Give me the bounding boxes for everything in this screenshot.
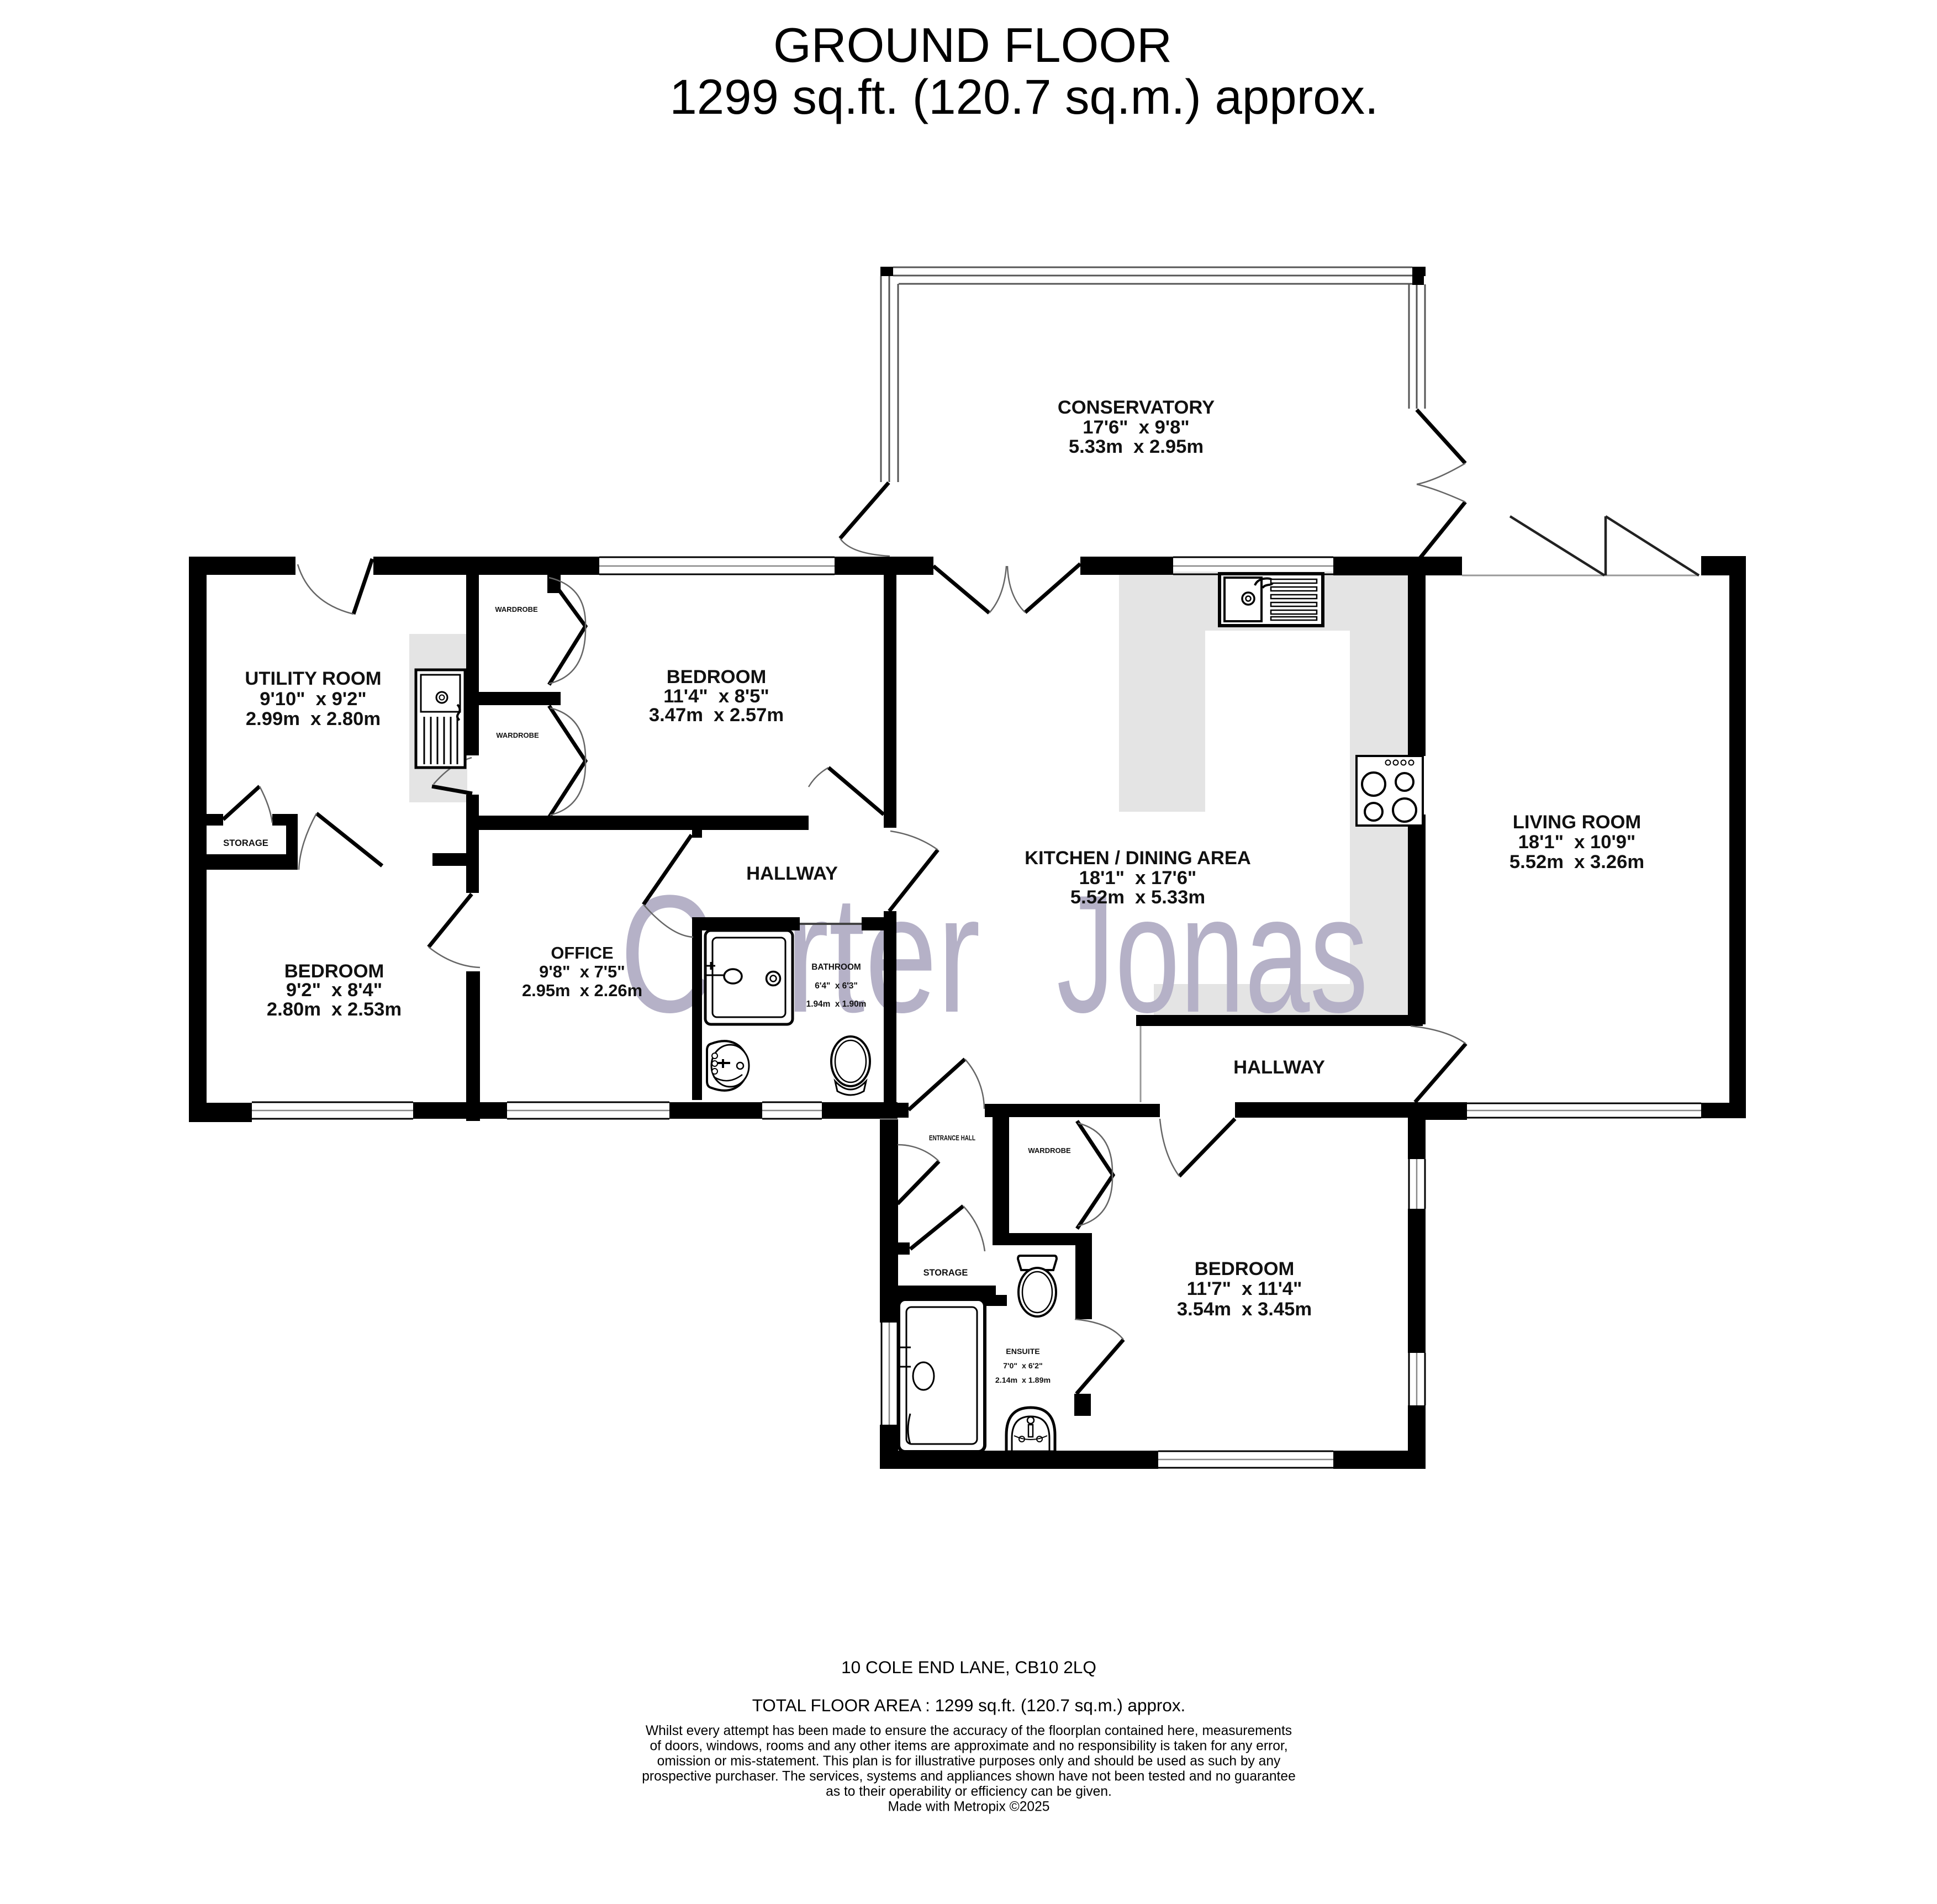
svg-text:9'2" x 8'4": 9'2" x 8'4" [286, 980, 382, 1001]
svg-text:prospective purchaser. The ser: prospective purchaser. The services, sys… [642, 1769, 1296, 1784]
svg-text:2.99m x 2.80m: 2.99m x 2.80m [246, 708, 381, 729]
svg-text:omission or mis-statement. Thi: omission or mis-statement. This plan is … [657, 1754, 1281, 1769]
svg-text:ENSUITE: ENSUITE [1006, 1347, 1040, 1356]
svg-text:LIVING ROOM: LIVING ROOM [1513, 812, 1641, 833]
svg-text:UTILITY ROOM: UTILITY ROOM [245, 668, 381, 689]
svg-text:6'4" x 6'3": 6'4" x 6'3" [815, 981, 858, 991]
svg-text:BEDROOM: BEDROOM [284, 961, 384, 982]
svg-text:18'1" x 17'6": 18'1" x 17'6" [1079, 868, 1197, 888]
svg-text:OFFICE: OFFICE [551, 943, 613, 962]
svg-text:3.47m x 2.57m: 3.47m x 2.57m [649, 705, 784, 726]
svg-text:GROUND FLOOR: GROUND FLOOR [773, 18, 1172, 72]
svg-text:BEDROOM: BEDROOM [1195, 1258, 1295, 1279]
svg-text:9'8" x 7'5": 9'8" x 7'5" [539, 962, 625, 981]
svg-text:ENTRANCE HALL: ENTRANCE HALL [929, 1134, 975, 1142]
svg-text:BEDROOM: BEDROOM [667, 667, 767, 687]
svg-text:17'6" x 9'8": 17'6" x 9'8" [1083, 417, 1189, 438]
svg-text:WARDROBE: WARDROBE [1028, 1146, 1071, 1155]
svg-text:BATHROOM: BATHROOM [811, 962, 861, 972]
svg-text:2.80m x 2.53m: 2.80m x 2.53m [267, 999, 402, 1020]
svg-text:1299 sq.ft. (120.7 sq.m.) appr: 1299 sq.ft. (120.7 sq.m.) approx. [669, 70, 1378, 124]
svg-text:5.33m x 2.95m: 5.33m x 2.95m [1069, 436, 1204, 457]
svg-text:1.94m x 1.90m: 1.94m x 1.90m [806, 999, 867, 1009]
svg-text:KITCHEN / DINING AREA: KITCHEN / DINING AREA [1025, 848, 1251, 869]
svg-text:9'10" x 9'2": 9'10" x 9'2" [260, 689, 366, 710]
svg-text:TOTAL FLOOR AREA : 1299 sq.ft.: TOTAL FLOOR AREA : 1299 sq.ft. (120.7 sq… [752, 1696, 1186, 1715]
svg-text:HALLWAY: HALLWAY [746, 863, 838, 884]
svg-text:10 COLE END LANE, CB10 2LQ: 10 COLE END LANE, CB10 2LQ [841, 1657, 1096, 1677]
svg-text:11'7" x 11'4": 11'7" x 11'4" [1187, 1278, 1302, 1299]
svg-text:18'1" x 10'9": 18'1" x 10'9" [1518, 832, 1636, 853]
svg-text:11'4" x 8'5": 11'4" x 8'5" [663, 686, 769, 707]
svg-text:5.52m x 3.26m: 5.52m x 3.26m [1510, 851, 1644, 872]
svg-text:7'0" x 6'2": 7'0" x 6'2" [1003, 1362, 1042, 1371]
svg-text:WARDROBE: WARDROBE [496, 731, 539, 739]
svg-text:3.54m x 3.45m: 3.54m x 3.45m [1177, 1299, 1312, 1320]
svg-text:CONSERVATORY: CONSERVATORY [1058, 397, 1215, 418]
svg-text:of doors, windows, rooms and a: of doors, windows, rooms and any other i… [650, 1739, 1287, 1754]
svg-text:as to their operability or eff: as to their operability or efficiency ca… [826, 1784, 1112, 1799]
svg-text:Made with Metropix ©2025: Made with Metropix ©2025 [888, 1800, 1050, 1815]
svg-text:STORAGE: STORAGE [223, 838, 268, 848]
svg-text:Whilst every attempt has been: Whilst every attempt has been made to en… [646, 1723, 1292, 1738]
svg-text:5.52m x 5.33m: 5.52m x 5.33m [1070, 887, 1205, 908]
svg-text:HALLWAY: HALLWAY [1233, 1057, 1325, 1078]
svg-text:Carter: Carter [620, 861, 980, 1048]
svg-text:STORAGE: STORAGE [923, 1268, 968, 1278]
svg-text:2.95m x 2.26m: 2.95m x 2.26m [522, 981, 642, 1000]
svg-text:WARDROBE: WARDROBE [495, 605, 538, 613]
svg-text:2.14m x 1.89m: 2.14m x 1.89m [995, 1376, 1051, 1385]
